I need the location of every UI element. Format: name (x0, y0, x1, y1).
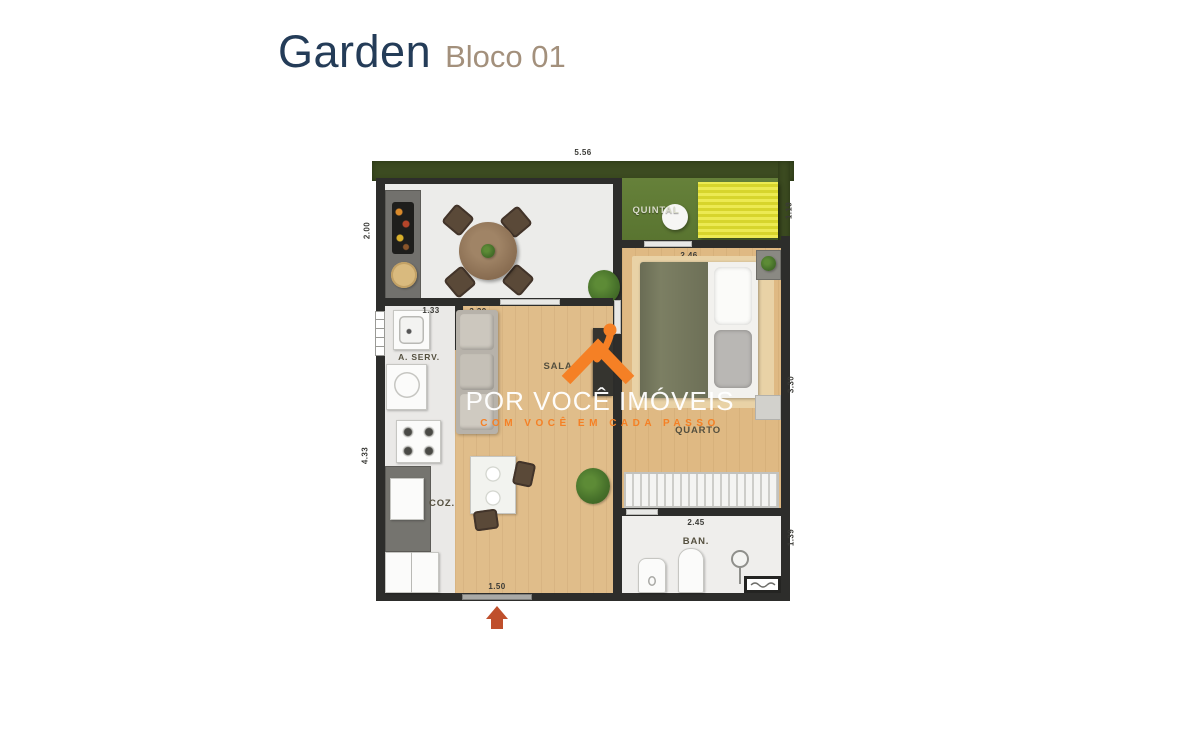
kitchen-sink (390, 478, 424, 520)
bathroom-vanity (744, 576, 781, 593)
shower-head-icon (731, 550, 749, 568)
entrance-arrow-stem (491, 618, 503, 629)
wall-bedroom-top (613, 240, 790, 248)
watermark-tagline: COM VOCÊ EM CADA PASSO (420, 418, 780, 429)
patio-door (500, 299, 560, 305)
bathroom-door (626, 509, 658, 515)
plan-title: Garden (278, 26, 431, 77)
serving-platter (391, 262, 417, 288)
room-label-service: A. SERV. (382, 352, 456, 362)
wardrobe (624, 472, 779, 508)
watermark-logo-icon (560, 322, 640, 384)
shower-head-stem (739, 568, 741, 584)
table-plant (481, 244, 495, 258)
dimension-bathroom-width: 2.45 (671, 518, 721, 527)
dimension-service-width: 1.33 (414, 306, 448, 315)
sofa-cushion (460, 314, 494, 350)
bed-pillow (714, 267, 752, 325)
bed-pillow (714, 330, 752, 388)
window-left (375, 311, 385, 356)
grill-icon (392, 202, 414, 254)
living-plant (576, 468, 610, 504)
watermark-brand: POR VOCÊ IMÓVEIS (420, 386, 780, 417)
page-title: GardenBloco 01 (278, 26, 566, 78)
toilet-bowl (648, 576, 656, 586)
refrigerator-divider (411, 552, 412, 593)
washing-machine-lid (394, 372, 420, 398)
dimension-bathroom-right: 1.39 (787, 523, 796, 553)
sofa-cushion (460, 354, 494, 390)
bed-blanket (640, 262, 708, 398)
bedroom-garden-door (644, 241, 692, 247)
sink-squiggle-icon (744, 576, 781, 593)
page: GardenBloco 01 5.56 QUINTAL 1.19 (0, 0, 1200, 750)
laundry-tub-basin (399, 316, 424, 344)
quintal-deck (698, 182, 778, 238)
dimension-bedroom-right: 3.30 (787, 370, 796, 400)
refrigerator (385, 552, 439, 593)
wall-left (376, 178, 385, 601)
shower-stall (678, 548, 704, 593)
room-label-bathroom: BAN. (671, 536, 721, 547)
wall-patio-bottom (385, 298, 613, 306)
dimension-entrance-width: 1.50 (467, 582, 527, 591)
island-stool (473, 508, 500, 531)
dimension-quintal-right: 1.19 (785, 196, 794, 226)
entrance-door (462, 594, 532, 600)
kitchen-island (470, 456, 516, 514)
room-label-quintal: QUINTAL (616, 205, 696, 216)
dimension-left-lower: 4.33 (361, 441, 370, 471)
dimension-top-width: 5.56 (376, 148, 790, 157)
nightstand-plant (761, 256, 776, 271)
wall-bottom (376, 593, 790, 601)
dimension-left-upper: 2.00 (363, 216, 372, 246)
plan-subtitle: Bloco 01 (445, 39, 566, 74)
